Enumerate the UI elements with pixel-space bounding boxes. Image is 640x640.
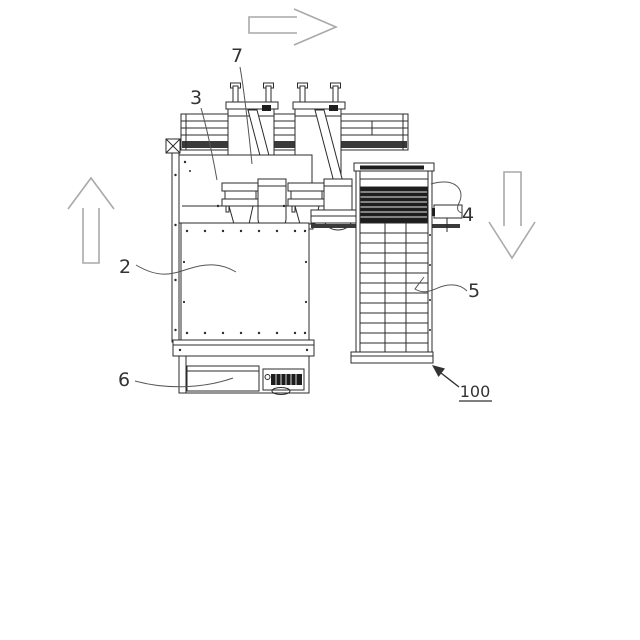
part-label-7: 7 <box>231 45 243 67</box>
patent-figure: 7 3 2 6 4 5 100 <box>0 0 640 640</box>
tray-stack <box>358 187 428 223</box>
patent-figure-canvas: 7 3 2 6 4 5 100 <box>0 0 640 640</box>
base-unit <box>179 356 309 395</box>
part-label-6: 6 <box>118 369 130 391</box>
part-label-2: 2 <box>119 256 131 278</box>
flow-arrow-right-icon <box>249 9 336 45</box>
cabinet-front-panel <box>173 223 314 356</box>
part-label-4: 4 <box>462 204 474 226</box>
flow-arrow-up-icon <box>68 178 114 263</box>
part-label-5: 5 <box>468 280 480 302</box>
part-label-100: 100 <box>460 382 491 401</box>
flow-arrow-down-icon <box>489 172 535 258</box>
rack-grid <box>360 223 428 352</box>
part-label-3: 3 <box>190 87 202 109</box>
base-recessed-panel <box>187 366 259 391</box>
magazine-tower <box>351 163 434 363</box>
cabinet-bottom-plate <box>173 340 314 356</box>
gripper-cylinder-1 <box>258 179 286 230</box>
tower-bottom-cap <box>351 352 433 363</box>
